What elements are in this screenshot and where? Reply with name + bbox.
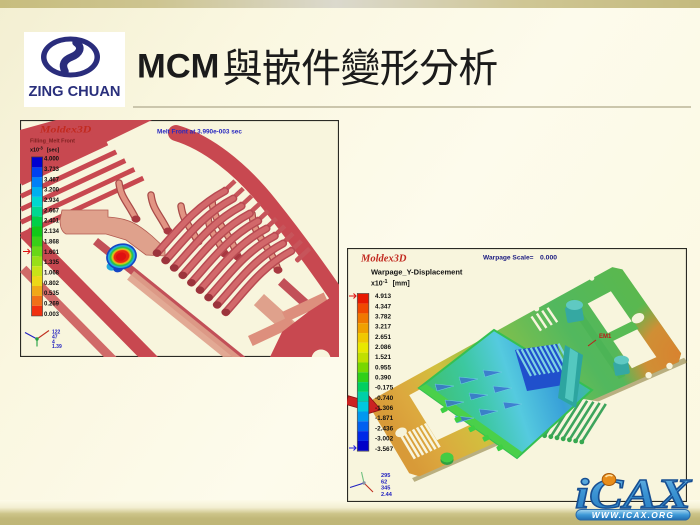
svg-text:0.000: 0.000 [540,255,557,262]
svg-text:Melt Front at 3.990e-003 sec: Melt Front at 3.990e-003 sec [157,128,242,135]
svg-text:1.39: 1.39 [52,344,62,350]
svg-text:MCM: MCM [137,48,219,86]
svg-text:4.000: 4.000 [44,157,60,163]
svg-text:3.782: 3.782 [375,314,391,321]
svg-text:-2.436: -2.436 [375,425,394,432]
svg-text:3.733: 3.733 [44,167,60,173]
svg-text:295: 295 [381,473,390,479]
svg-text:Moldex3D: Moldex3D [39,126,92,135]
svg-text:1.521: 1.521 [375,354,391,361]
svg-text:2.401: 2.401 [44,219,60,225]
svg-text:-3.002: -3.002 [375,436,394,443]
svg-text:2.934: 2.934 [44,198,60,204]
svg-text:0.955: 0.955 [375,364,391,371]
svg-text:0.269: 0.269 [44,302,60,308]
svg-text:0.390: 0.390 [375,375,391,382]
svg-text:1.601: 1.601 [44,250,60,256]
svg-text:2.667: 2.667 [44,208,60,214]
svg-text:2.086: 2.086 [375,344,391,351]
svg-text:3.467: 3.467 [44,177,60,183]
svg-text:-1.871: -1.871 [375,415,394,422]
svg-text:2.651: 2.651 [375,334,391,341]
svg-text:1.068: 1.068 [44,270,60,276]
svg-text:1.868: 1.868 [44,239,60,245]
svg-text:-1.306: -1.306 [375,405,394,412]
svg-text:0.535: 0.535 [44,291,60,297]
svg-text:0.802: 0.802 [44,281,60,287]
svg-text:-0.740: -0.740 [375,395,394,402]
svg-text:Filling_Melt Front: Filling_Melt Front [30,138,75,144]
svg-text:Moldex3D: Moldex3D [360,254,407,265]
svg-text:1.335: 1.335 [44,260,60,266]
svg-text:0.003: 0.003 [44,312,60,318]
svg-text:WWW.ICAX.ORG: WWW.ICAX.ORG [592,510,674,520]
svg-text:-0.175: -0.175 [375,385,394,392]
svg-text:-3.567: -3.567 [375,446,394,453]
svg-text:3.217: 3.217 [375,324,391,331]
svg-text:4.347: 4.347 [375,303,391,310]
svg-text:ZING CHUAN: ZING CHUAN [29,83,121,100]
svg-text:3.200: 3.200 [44,188,60,194]
svg-text:Warpage Scale=: Warpage Scale= [483,255,534,262]
svg-text:2.134: 2.134 [44,229,60,235]
svg-text:4.913: 4.913 [375,293,391,300]
svg-text:2.44: 2.44 [381,492,393,498]
svg-text:345: 345 [381,486,390,492]
svg-text:62: 62 [381,479,387,485]
svg-text:Warpage_Y-Displacement: Warpage_Y-Displacement [371,268,463,277]
svg-text:EM1: EM1 [599,334,612,340]
